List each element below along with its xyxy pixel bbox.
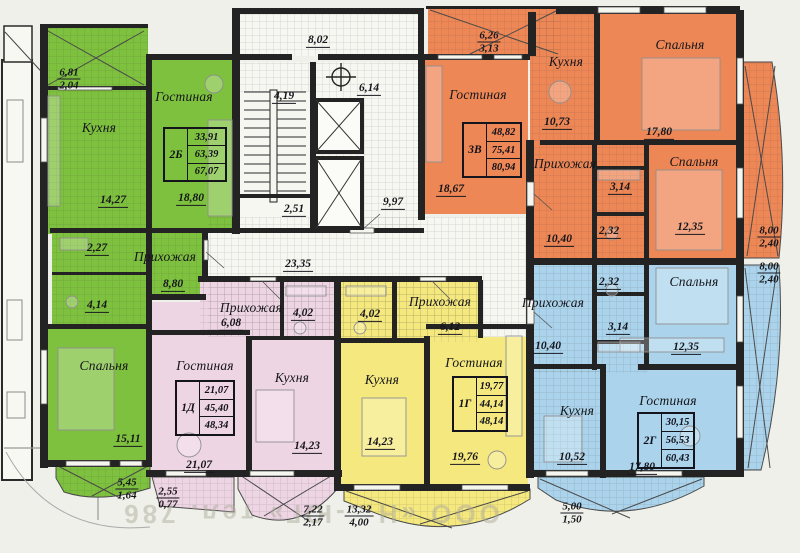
blue-hall-area: 10,40	[533, 340, 563, 354]
blue-bath-area: 3,14	[606, 321, 630, 335]
pink-hall-area: 6,08	[219, 317, 243, 331]
corridor-area: 23,35	[283, 258, 313, 272]
area-table-2g: 2Г 30,15 56,53 60,43	[637, 412, 695, 469]
blue-hall-label: Прихожая	[522, 295, 584, 311]
pink-kitchen-label: Кухня	[275, 370, 309, 386]
area-table-1g: 1Г 19,77 44,14 48,14	[452, 376, 508, 432]
orange-hall-label: Прихожая	[534, 156, 596, 172]
floor-plan: 8,02 4,19 6,14 2,51 9,97 23,35 6,81 2,04…	[0, 0, 800, 553]
pink-hall-label: Прихожая	[220, 300, 282, 316]
apartment-type-1d: 1Д	[177, 382, 200, 434]
green-bath-area: 4,14	[85, 299, 109, 313]
orange-bedroom2-area: 12,35	[675, 221, 705, 235]
orange-living-label: Гостиная	[449, 87, 507, 103]
area-table-2b: 2Б 33,91 63,39 67,07	[163, 127, 227, 182]
yellow-kitchen-label: Кухня	[365, 372, 399, 388]
yellow-kitchen-area: 14,23	[365, 436, 395, 450]
pink-living-area: 21,07	[184, 459, 214, 473]
core-lift-lobby-area: 6,14	[357, 82, 381, 96]
green-bottom-balcony-area: 5,45 1,64	[115, 477, 138, 502]
yellow-living-label: Гостиная	[445, 355, 503, 371]
area-table-1d: 1Д 21,07 45,40 48,34	[175, 380, 235, 436]
yellow-hall-area: 6,12	[438, 321, 462, 335]
blue-kitchen-area: 10,52	[557, 451, 587, 465]
apartment-type-2g: 2Г	[639, 414, 662, 467]
apartment-type-2b: 2Б	[165, 129, 188, 180]
orange-bath-area: 3,14	[608, 181, 632, 195]
pink-bath-area: 4,02	[291, 307, 315, 321]
blue-bedroom-area: 12,35	[671, 341, 701, 355]
green-living-label: Гостиная	[155, 89, 213, 105]
yellow-bath-area: 4,02	[358, 308, 382, 322]
orange-top-balcony-area: 6,26 3,13	[477, 30, 500, 55]
core-upper-hall-area: 8,02	[306, 34, 330, 48]
orange-hall-area: 10,40	[544, 233, 574, 247]
core-stairs-area: 4,19	[272, 90, 296, 104]
green-living-area: 18,80	[176, 192, 206, 206]
green-bedroom-label: Спальня	[80, 358, 129, 374]
apartment-type-3v: 3В	[464, 124, 487, 176]
green-kitchen-area: 14,27	[98, 194, 128, 208]
orange-kitchen-area: 10,73	[542, 116, 572, 130]
green-hall-area: 8,80	[161, 278, 185, 292]
blue-wc-area: 2,32	[597, 276, 621, 290]
blue-right-balcony-area: 8,00 2,40	[757, 261, 780, 286]
blue-bedroom-label: Спальня	[670, 274, 719, 290]
orange-bedroom1-label: Спальня	[656, 37, 705, 53]
core-hall-area: 9,97	[381, 196, 405, 210]
green-hall-label: Прихожая	[134, 249, 196, 265]
green-kitchen-label: Кухня	[82, 120, 116, 136]
pink-balcony-area: 7,22 2,17	[301, 504, 324, 529]
apartment-type-1g: 1Г	[454, 378, 477, 430]
blue-bottom-balcony-area: 5,00 1,50	[560, 501, 583, 526]
orange-right-balcony-area: 8,00 2,40	[757, 225, 780, 250]
area-table-3v: 3В 48,82 75,41 80,94	[462, 122, 522, 178]
yellow-balcony-area: 13,32 4,00	[345, 504, 374, 529]
pink-living-label: Гостиная	[176, 358, 234, 374]
pink-kitchen-area: 14,23	[292, 440, 322, 454]
pink-ledge-area: 2,55 0,77	[156, 486, 179, 511]
blue-kitchen-label: Кухня	[560, 403, 594, 419]
green-bedroom-area: 15,11	[113, 433, 142, 447]
yellow-living-area: 19,76	[450, 451, 480, 465]
orange-kitchen-label: Кухня	[549, 54, 583, 70]
blue-living-label: Гостиная	[639, 393, 697, 409]
orange-wc-area: 2,32	[597, 225, 621, 239]
green-top-balcony-area: 6,81 2,04	[57, 67, 80, 92]
orange-bedroom1-area: 17,80	[644, 126, 674, 140]
orange-living-area: 18,67	[436, 183, 466, 197]
green-wc-area: 2,27	[85, 242, 109, 256]
core-vestibule-area: 2,51	[282, 203, 306, 217]
elevator-shafts	[316, 100, 362, 228]
yellow-hall-label: Прихожая	[409, 294, 471, 310]
orange-bedroom2-label: Спальня	[670, 154, 719, 170]
